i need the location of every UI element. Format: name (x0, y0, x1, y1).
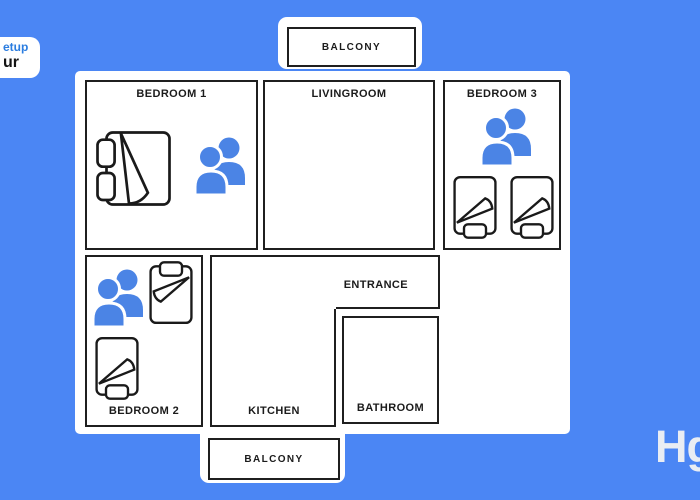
brand-logo: Hg (655, 421, 700, 473)
app-canvas: etup ur BALCONY BEDROOM 1 LIVINGROOM BED… (0, 0, 700, 500)
double-bed-icon[interactable] (93, 128, 174, 209)
room-bathroom-label: BATHROOM (344, 402, 437, 414)
room-bedroom-2[interactable]: BEDROOM 2 (85, 255, 203, 427)
wall-divider-horizontal (336, 307, 440, 309)
room-kitchen[interactable]: KITCHEN (210, 309, 336, 427)
room-entrance-label: ENTRANCE (344, 279, 408, 291)
single-bed-icon[interactable] (450, 174, 500, 240)
setup-widget-label-top[interactable]: etup (3, 41, 40, 54)
single-bed-icon[interactable] (146, 260, 196, 326)
room-bedroom-2-label: BEDROOM 2 (87, 405, 201, 417)
room-livingroom[interactable]: LIVINGROOM (263, 80, 435, 250)
floorplan: BEDROOM 1 LIVINGROOM BEDROOM 3 (75, 71, 570, 434)
two-people-icon[interactable] (193, 135, 247, 195)
balcony-bottom-card: BALCONY (200, 432, 345, 483)
balcony-top-room: BALCONY (287, 27, 416, 67)
balcony-bottom-room: BALCONY (208, 438, 340, 480)
two-people-icon[interactable] (91, 267, 145, 327)
balcony-top-label: BALCONY (322, 42, 381, 53)
setup-widget[interactable]: etup ur (0, 37, 40, 78)
two-people-icon[interactable] (479, 106, 533, 166)
room-bedroom-3-label: BEDROOM 3 (445, 88, 559, 100)
room-bedroom-3[interactable]: BEDROOM 3 (443, 80, 561, 250)
single-bed-icon[interactable] (92, 335, 142, 401)
room-bedroom-1-label: BEDROOM 1 (87, 88, 256, 100)
room-entrance[interactable]: ENTRANCE (210, 255, 440, 309)
single-bed-icon[interactable] (507, 174, 557, 240)
balcony-top-card: BALCONY (278, 17, 422, 69)
setup-widget-label-bottom[interactable]: ur (3, 54, 40, 71)
room-kitchen-label: KITCHEN (212, 405, 336, 417)
balcony-bottom-label: BALCONY (244, 454, 303, 465)
room-livingroom-label: LIVINGROOM (265, 88, 433, 100)
wall-divider-vertical (334, 309, 336, 427)
room-bathroom[interactable]: BATHROOM (342, 316, 439, 424)
room-bedroom-1[interactable]: BEDROOM 1 (85, 80, 258, 250)
